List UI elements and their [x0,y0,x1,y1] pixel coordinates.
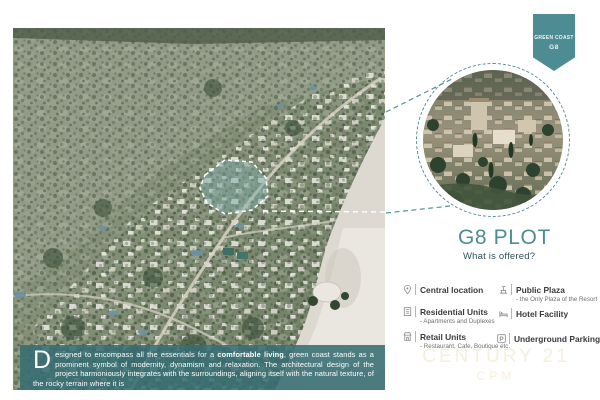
offering-retail-units: Retail Units - Restaurant, Cafe, Boutiqu… [402,331,510,350]
offering-label: Retail Units [420,332,466,342]
badge-project-name: GREEN COAST [533,35,575,41]
offering-label: Underground Parking [514,334,600,344]
green-coast-badge: GREEN COAST G8 [533,14,575,71]
description-text: Designed to encompass all the essentials… [33,350,374,389]
icon-separator [415,306,416,317]
offering-hotel-facility: Hotel Facility [498,308,568,319]
description-segment: esigned to encompass all the essentials … [55,350,217,359]
location-icon [402,284,413,295]
residential-icon [402,306,413,317]
icon-separator [415,331,416,342]
description-bold: comfortable living [217,350,283,359]
offering-central-location: Central location [402,284,483,295]
plot-zoom-image [423,70,563,210]
offering-label: Central location [420,285,483,295]
plaza-icon [498,284,509,295]
plot-subtitle: What is offered? [463,251,535,262]
description-banner: Designed to encompass all the essentials… [20,345,385,390]
svg-text:P: P [499,336,504,343]
offering-label: Public Plaza [516,285,565,295]
offering-label: Hotel Facility [516,309,568,319]
icon-separator [511,284,512,295]
offering-note: - the Only Plaza of the Resort [516,296,597,303]
offering-label: Residential Units [420,307,488,317]
hotel-icon [498,308,509,319]
offering-residential-units: Residential Units - Apartments and Duple… [402,306,495,325]
plot-title: G8 PLOT [458,226,551,250]
icon-separator [415,284,416,295]
century21-watermark: CENTURY 21 CPM [406,346,586,383]
watermark-unit: CPM [406,369,586,383]
offering-underground-parking: P Underground Parking [496,333,600,344]
icon-separator [509,333,510,344]
offering-note: - Restaurant, Cafe, Boutique etc. [420,343,510,350]
offering-note: - Apartments and Duplexes [420,318,495,325]
presentation-slide: Designed to encompass all the essentials… [0,0,600,400]
offering-public-plaza: Public Plaza - the Only Plaza of the Res… [498,284,597,303]
village-art [423,70,563,210]
parking-icon: P [496,333,507,344]
badge-plot-code: G8 [533,44,575,51]
dropcap-letter: D [33,351,51,370]
icon-separator [511,308,512,319]
aerial-art [13,28,385,390]
retail-icon [402,331,413,342]
aerial-masterplan-image: Designed to encompass all the essentials… [13,28,385,390]
